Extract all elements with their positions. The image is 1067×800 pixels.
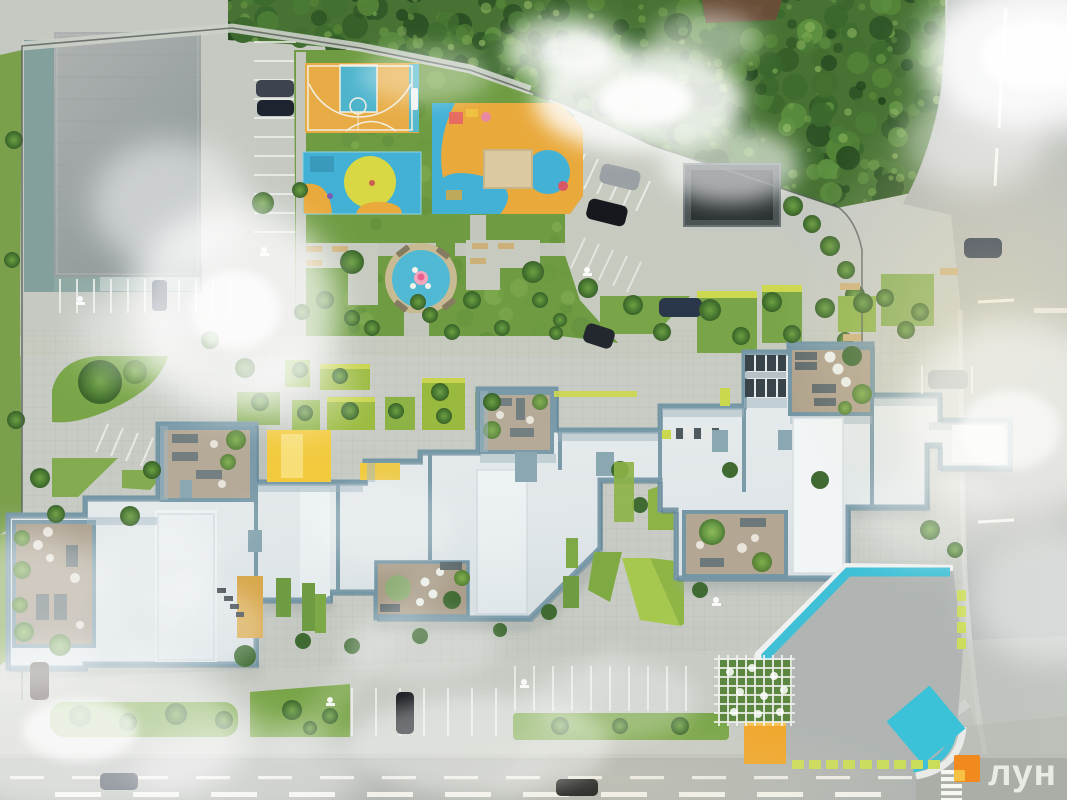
svg-text:лун: лун [988, 752, 1057, 793]
